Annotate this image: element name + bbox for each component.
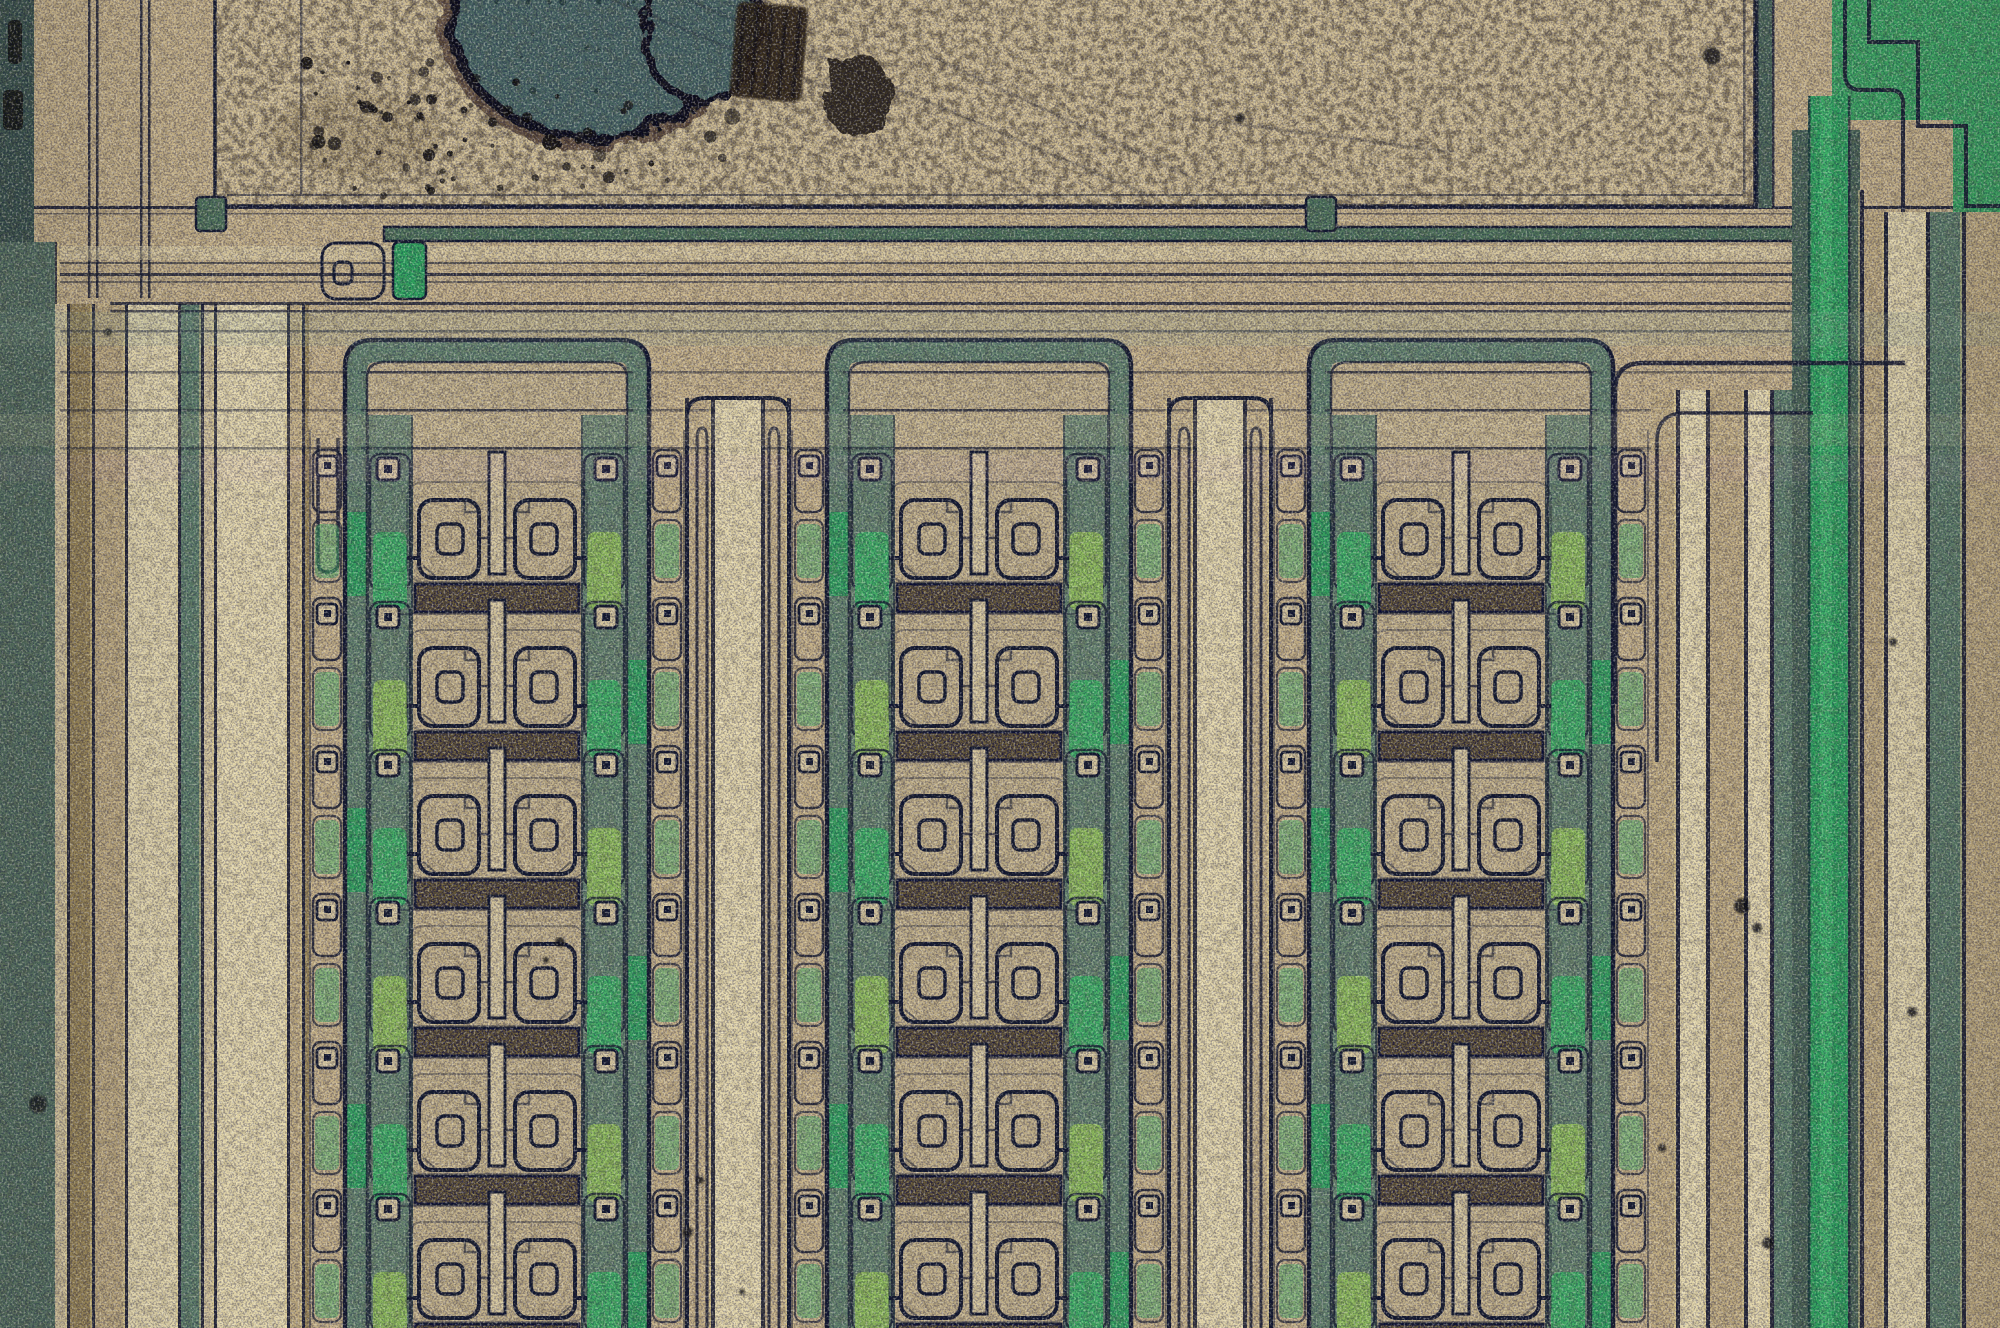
vignette bbox=[0, 0, 2000, 1328]
die-photograph: Silicon integrated-circuit die under opt… bbox=[0, 0, 2000, 1328]
die-photo-canvas: Silicon integrated-circuit die under opt… bbox=[0, 0, 2000, 1328]
